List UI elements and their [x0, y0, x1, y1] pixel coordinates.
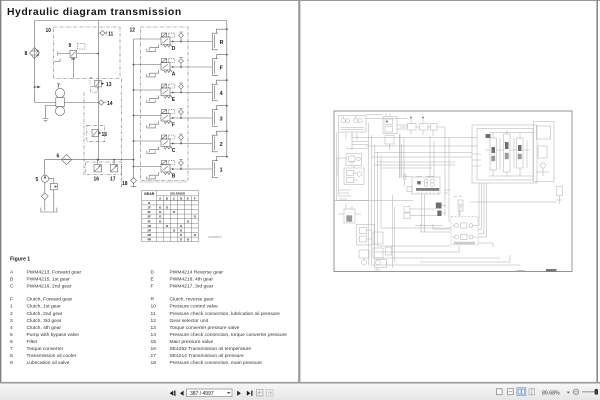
- svg-text:5: 5: [10, 332, 13, 338]
- svg-text:The solenoid valves marked O a: The solenoid valves marked O are activat…: [140, 181, 187, 184]
- svg-text:11: 11: [151, 311, 156, 317]
- svg-text:B: B: [166, 197, 168, 201]
- svg-text:3F: 3F: [148, 215, 152, 219]
- svg-text:2: 2: [10, 311, 13, 317]
- svg-text:15: 15: [102, 132, 108, 138]
- svg-text:D: D: [172, 46, 176, 52]
- svg-text:D: D: [180, 197, 182, 201]
- svg-text:8: 8: [10, 353, 13, 359]
- svg-text:16: 16: [94, 177, 100, 183]
- svg-text:2: 2: [220, 142, 223, 148]
- svg-text:Transmission oil cooler: Transmission oil cooler: [27, 353, 77, 359]
- svg-text:2F: 2F: [148, 210, 152, 214]
- svg-text:B: B: [172, 173, 176, 179]
- svg-text:1F: 1F: [148, 206, 152, 210]
- svg-text:GEAR: GEAR: [144, 192, 155, 196]
- svg-text:D: D: [151, 270, 155, 276]
- svg-text:Clutch, Forward gear: Clutch, Forward gear: [27, 297, 73, 303]
- svg-text:Pump with bypass valve: Pump with bypass valve: [27, 332, 80, 338]
- svg-text:13: 13: [151, 325, 157, 331]
- svg-text:SE4214 Transmission oil pressu: SE4214 Transmission oil pressure: [170, 353, 244, 359]
- svg-text:A: A: [172, 71, 176, 77]
- svg-text:Pressure check connection, tor: Pressure check connection, torque conver…: [170, 332, 288, 338]
- svg-text:16: 16: [151, 346, 157, 352]
- svg-text:Clutch, 1st gear: Clutch, 1st gear: [27, 304, 62, 310]
- svg-text:R: R: [220, 40, 224, 46]
- svg-text:9: 9: [69, 43, 72, 49]
- svg-text:PWM4216, 2nd gear: PWM4216, 2nd gear: [27, 284, 72, 290]
- svg-text:PWM4213, Forward gear: PWM4213, Forward gear: [27, 270, 82, 276]
- svg-text:Torque converter: Torque converter: [27, 346, 64, 352]
- svg-text:N: N: [148, 201, 150, 205]
- svg-text:89.68%: 89.68%: [542, 390, 560, 396]
- svg-text:387 / 4997: 387 / 4997: [190, 391, 214, 397]
- svg-text:PWM4215, 1st gear: PWM4215, 1st gear: [27, 277, 71, 283]
- svg-text:Torque converter pressure valv: Torque converter pressure valve: [170, 325, 240, 331]
- svg-text:B: B: [10, 277, 13, 283]
- svg-text:18: 18: [151, 360, 157, 366]
- svg-text:9: 9: [10, 360, 13, 366]
- svg-text:Lubrication oil valve: Lubrication oil valve: [27, 360, 70, 366]
- svg-text:SE4252 Transmission oil temper: SE4252 Transmission oil temperature: [170, 346, 252, 352]
- svg-text:18: 18: [122, 181, 128, 187]
- svg-text:PWM4217, 3rd gear: PWM4217, 3rd gear: [170, 284, 214, 290]
- svg-text:1: 1: [220, 167, 223, 173]
- svg-text:Figure 1: Figure 1: [10, 257, 30, 263]
- svg-text:F: F: [151, 284, 154, 290]
- svg-text:15: 15: [151, 339, 157, 345]
- svg-text:C: C: [172, 148, 176, 154]
- svg-text:Filter: Filter: [27, 339, 38, 345]
- svg-text:C: C: [10, 284, 14, 290]
- svg-text:6: 6: [10, 339, 13, 345]
- svg-text:F: F: [172, 122, 175, 128]
- svg-text:Pressure check connection, lub: Pressure check connection, lubrication o…: [170, 311, 281, 317]
- svg-text:Pressure check connection, mai: Pressure check connection, main pressure: [170, 360, 263, 366]
- svg-text:17: 17: [110, 177, 116, 183]
- svg-text:5: 5: [36, 177, 39, 183]
- svg-text:6: 6: [57, 154, 60, 160]
- svg-text:F: F: [194, 197, 196, 201]
- svg-text:14: 14: [107, 101, 113, 107]
- svg-text:1: 1: [10, 304, 13, 310]
- svg-text:7: 7: [10, 346, 13, 352]
- svg-text:13: 13: [106, 82, 112, 88]
- svg-text:Hydraulic diagram transmission: Hydraulic diagram transmission: [7, 7, 182, 18]
- svg-text:Pressure control valve: Pressure control valve: [170, 304, 219, 310]
- svg-text:10: 10: [46, 28, 52, 34]
- svg-text:4: 4: [220, 91, 223, 97]
- svg-text:4: 4: [10, 325, 13, 331]
- svg-text:V1060617: V1060617: [208, 235, 222, 239]
- svg-text:Clutch, 4th gear: Clutch, 4th gear: [27, 325, 62, 331]
- svg-text:12: 12: [151, 318, 157, 324]
- svg-text:10: 10: [151, 304, 157, 310]
- svg-text:PWM4214 Reverse gear: PWM4214 Reverse gear: [170, 270, 224, 276]
- svg-text:4F: 4F: [148, 219, 152, 223]
- svg-text:12: 12: [130, 28, 136, 34]
- svg-text:17: 17: [151, 353, 157, 359]
- svg-text:Clutch, reverse gear: Clutch, reverse gear: [170, 297, 214, 303]
- svg-text:Gear selector unit: Gear selector unit: [170, 318, 209, 324]
- svg-text:3: 3: [220, 116, 223, 122]
- svg-text:R: R: [151, 297, 155, 303]
- svg-text:PWM4218, 4th gear: PWM4218, 4th gear: [170, 277, 214, 283]
- svg-text:8: 8: [25, 51, 28, 57]
- svg-text:3: 3: [10, 318, 13, 324]
- svg-text:Clutch, 2nd gear: Clutch, 2nd gear: [27, 311, 63, 317]
- svg-text:E: E: [187, 197, 189, 201]
- svg-text:F: F: [10, 297, 13, 303]
- svg-text:SOLENOID: SOLENOID: [170, 192, 185, 196]
- svg-text:14: 14: [151, 332, 157, 338]
- svg-text:Main pressure valve: Main pressure valve: [170, 339, 214, 345]
- svg-text:Clutch, 3rd gear: Clutch, 3rd gear: [27, 318, 62, 324]
- svg-text:7: 7: [57, 84, 60, 90]
- svg-text:11: 11: [108, 31, 114, 37]
